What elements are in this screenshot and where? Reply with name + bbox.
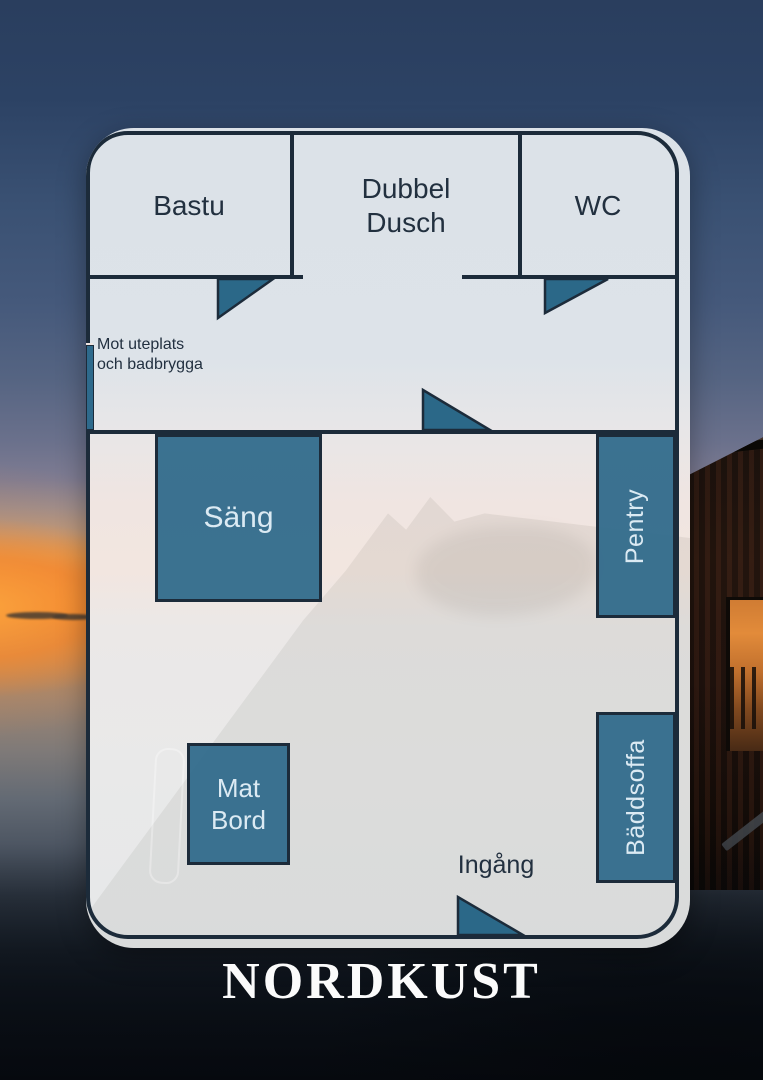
room-label-bastu: Bastu xyxy=(88,135,290,277)
room-label-dubbel-dusch: Dubbel Dusch xyxy=(292,135,520,277)
furniture-label: Mat Bord xyxy=(211,772,266,836)
furniture-pentry: Pentry xyxy=(596,434,676,618)
floorplan-panel: Bastu Dubbel Dusch WC Mot uteplats och b… xyxy=(86,128,690,948)
furniture-label: Säng xyxy=(203,501,273,535)
furniture-label: Bäddsoffa xyxy=(622,739,651,856)
annotation-ingang: Ingång xyxy=(426,851,566,880)
furniture-baddsoffa: Bäddsoffa xyxy=(596,712,676,883)
brand-name: NORDKUST xyxy=(0,952,763,1011)
room-label-text: Dubbel Dusch xyxy=(362,172,451,240)
furniture-label: Pentry xyxy=(622,488,651,563)
patio-door-icon xyxy=(86,345,94,430)
furniture-mat-bord: Mat Bord xyxy=(187,743,290,865)
room-label-text: Bastu xyxy=(153,189,225,223)
furniture-sang: Säng xyxy=(155,434,322,602)
room-label-wc: WC xyxy=(520,135,676,277)
annotation-mot-uteplats: Mot uteplats och badbrygga xyxy=(97,335,203,375)
room-label-text: WC xyxy=(575,189,622,223)
